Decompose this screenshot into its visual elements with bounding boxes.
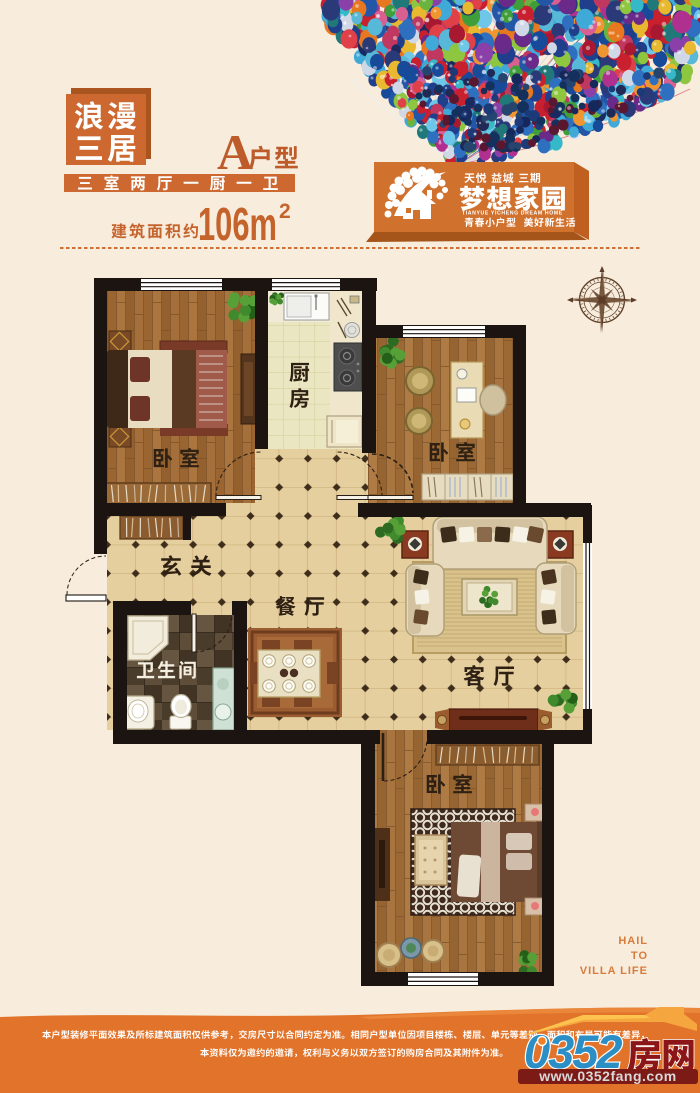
svg-text:A: A [217, 124, 253, 180]
svg-text:TO: TO [631, 950, 648, 962]
svg-text:www.0352fang.com: www.0352fang.com [538, 1068, 676, 1084]
svg-text:TIANYUE YICHENG DREAM HOME: TIANYUE YICHENG DREAM HOME [462, 211, 563, 217]
svg-text:2: 2 [279, 200, 291, 223]
svg-text:HAIL: HAIL [618, 935, 648, 947]
svg-text:106m: 106m [198, 198, 277, 250]
svg-text:VILLA LIFE: VILLA LIFE [580, 965, 648, 977]
